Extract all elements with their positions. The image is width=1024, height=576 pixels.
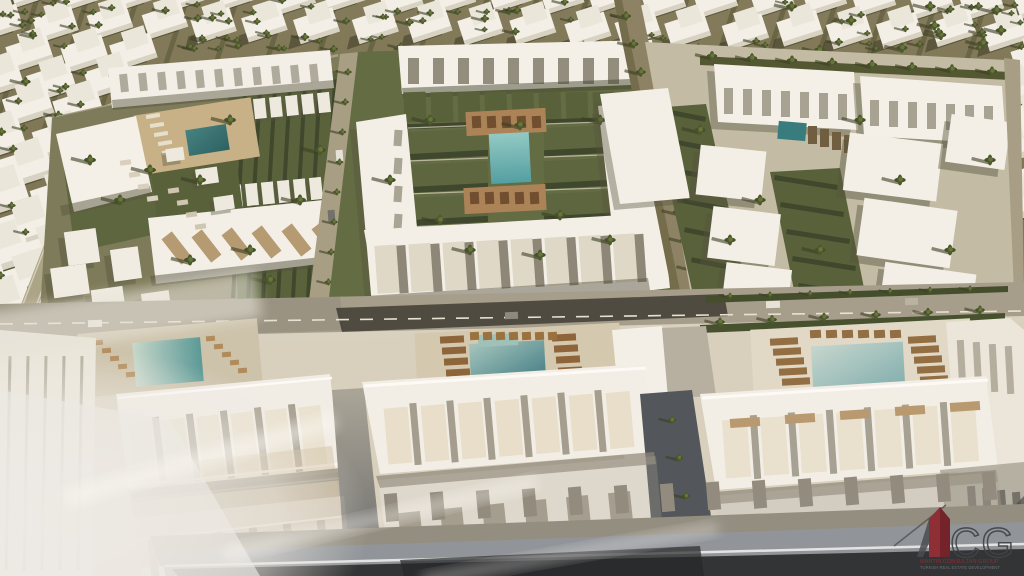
svg-text:TURKISH REAL ESTATE DEVELOPMEN: TURKISH REAL ESTATE DEVELOPMENT: [920, 565, 1000, 570]
